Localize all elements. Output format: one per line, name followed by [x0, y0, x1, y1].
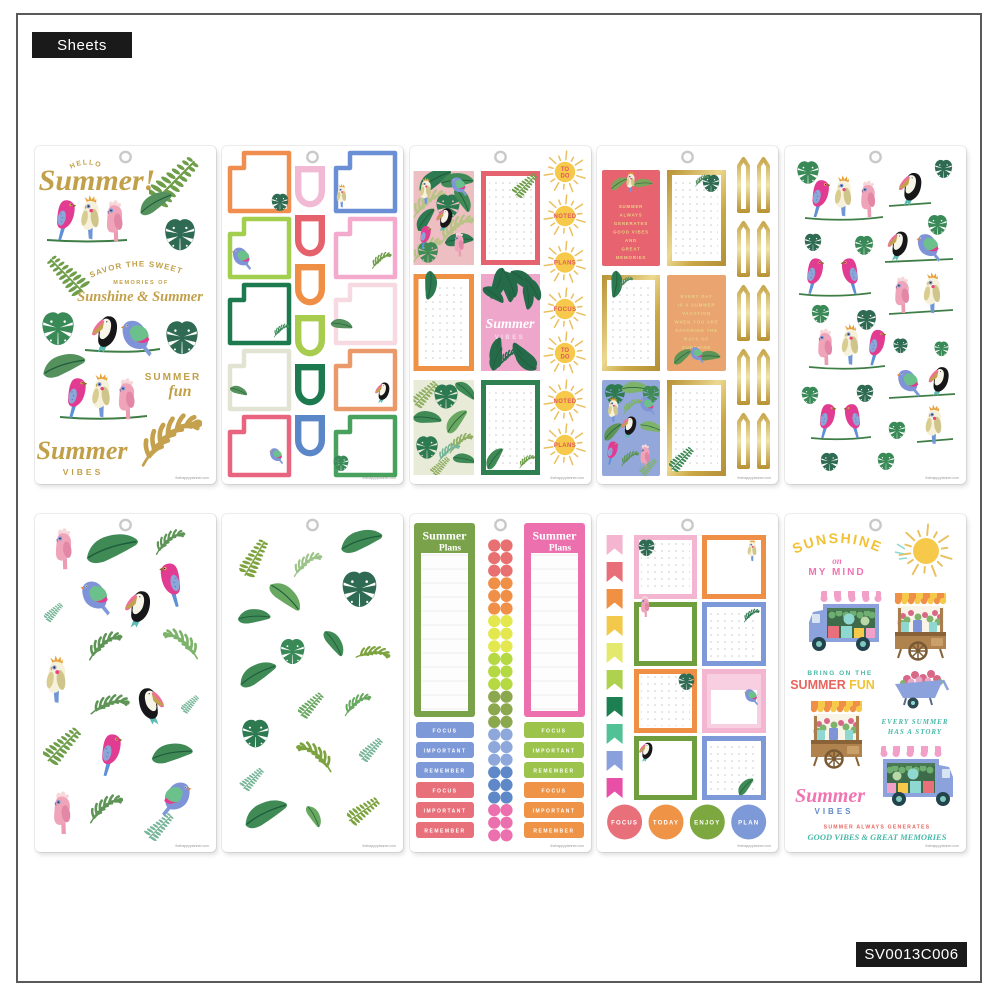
- svg-text:SUMMER: SUMMER: [145, 372, 201, 383]
- svg-text:ENJOY: ENJOY: [694, 821, 720, 827]
- svg-text:FOCUS: FOCUS: [542, 789, 567, 795]
- svg-text:SUMMER ALWAYS GENERATES: SUMMER ALWAYS GENERATES: [824, 825, 931, 831]
- svg-text:SAVOR THE SWEET: SAVOR THE SWEET: [88, 259, 184, 279]
- svg-text:thehappyplanner.com: thehappyplanner.com: [551, 844, 585, 848]
- svg-text:TO: TO: [561, 167, 570, 173]
- svg-text:FOCUS: FOCUS: [554, 307, 577, 313]
- svg-text:Plans: Plans: [439, 544, 461, 554]
- svg-text:DO: DO: [561, 355, 570, 361]
- svg-text:IMPORTANT: IMPORTANT: [424, 809, 467, 815]
- svg-text:SUMMER: SUMMER: [790, 678, 846, 692]
- svg-text:PLANS: PLANS: [554, 443, 576, 449]
- svg-text:GENERATES: GENERATES: [614, 221, 648, 226]
- svg-text:BRING ON THE: BRING ON THE: [807, 670, 872, 677]
- svg-text:VIBES: VIBES: [63, 467, 104, 477]
- svg-text:SUNSHINE: SUNSHINE: [790, 530, 885, 557]
- svg-text:Summer: Summer: [36, 436, 128, 465]
- svg-text:EVERY SUMMER: EVERY SUMMER: [880, 718, 948, 726]
- svg-text:thehappyplanner.com: thehappyplanner.com: [363, 476, 397, 480]
- svg-text:Summer: Summer: [423, 529, 468, 543]
- svg-text:TODAY: TODAY: [653, 821, 679, 827]
- svg-text:FOCUS: FOCUS: [433, 789, 458, 795]
- svg-text:IMPORTANT: IMPORTANT: [424, 749, 467, 755]
- svg-text:IS A SUMMER: IS A SUMMER: [678, 303, 716, 308]
- svg-text:PLANS: PLANS: [554, 261, 576, 267]
- svg-text:HAS A STORY: HAS A STORY: [887, 728, 942, 736]
- svg-text:AND: AND: [625, 238, 637, 243]
- svg-text:VACATION: VACATION: [682, 311, 711, 316]
- svg-text:TO: TO: [561, 348, 570, 354]
- svg-text:RAYS OF: RAYS OF: [684, 337, 709, 342]
- svg-text:WHEN YOU ARE: WHEN YOU ARE: [675, 320, 719, 325]
- svg-text:thehappyplanner.com: thehappyplanner.com: [738, 844, 772, 848]
- svg-text:on: on: [832, 556, 842, 566]
- svg-text:DO: DO: [561, 174, 570, 180]
- svg-text:thehappyplanner.com: thehappyplanner.com: [551, 476, 585, 480]
- svg-text:thehappyplanner.com: thehappyplanner.com: [176, 476, 210, 480]
- svg-text:MEMORIES OF: MEMORIES OF: [113, 280, 169, 286]
- svg-text:PLAN: PLAN: [738, 821, 759, 827]
- svg-text:Plans: Plans: [549, 544, 571, 554]
- svg-text:REMEMBER: REMEMBER: [533, 829, 574, 835]
- svg-text:NOTED: NOTED: [554, 214, 577, 220]
- svg-text:IMPORTANT: IMPORTANT: [533, 809, 576, 815]
- svg-text:FOCUS: FOCUS: [611, 821, 638, 827]
- svg-text:VIBES: VIBES: [495, 335, 526, 341]
- svg-text:REMEMBER: REMEMBER: [424, 769, 465, 775]
- svg-text:IMPORTANT: IMPORTANT: [533, 749, 576, 755]
- svg-text:Summer: Summer: [485, 317, 535, 332]
- svg-text:thehappyplanner.com: thehappyplanner.com: [738, 476, 772, 480]
- svg-text:MEMORIES: MEMORIES: [616, 255, 646, 260]
- svg-text:SAVORING THE: SAVORING THE: [675, 328, 718, 333]
- svg-text:REMEMBER: REMEMBER: [533, 769, 574, 775]
- svg-text:REMEMBER: REMEMBER: [424, 829, 465, 835]
- svg-text:FOCUS: FOCUS: [433, 729, 458, 735]
- svg-text:thehappyplanner.com: thehappyplanner.com: [176, 844, 210, 848]
- svg-text:EVERY DAY: EVERY DAY: [681, 294, 713, 299]
- svg-text:SUMMER: SUMMER: [619, 204, 643, 209]
- svg-text:Summer: Summer: [795, 785, 865, 807]
- svg-text:Sunshine & Summer: Sunshine & Summer: [77, 289, 203, 305]
- svg-text:thehappyplanner.com: thehappyplanner.com: [926, 476, 960, 480]
- svg-text:Summer!: Summer!: [39, 164, 156, 197]
- svg-text:Summer: Summer: [533, 529, 578, 543]
- svg-text:MY MIND: MY MIND: [808, 567, 865, 578]
- svg-text:thehappyplanner.com: thehappyplanner.com: [363, 844, 397, 848]
- svg-text:GOOD VIBES & GREAT MEMORIES: GOOD VIBES & GREAT MEMORIES: [808, 832, 947, 842]
- svg-text:fun: fun: [168, 383, 191, 400]
- svg-text:FOCUS: FOCUS: [542, 729, 567, 735]
- svg-text:ALWAYS: ALWAYS: [620, 213, 643, 218]
- svg-text:GREAT: GREAT: [621, 247, 640, 252]
- svg-text:VIBES: VIBES: [814, 807, 853, 816]
- svg-text:GOOD VIBES: GOOD VIBES: [613, 230, 649, 235]
- svg-text:thehappyplanner.com: thehappyplanner.com: [926, 844, 960, 848]
- svg-text:FUN: FUN: [849, 678, 875, 692]
- svg-text:NOTED: NOTED: [554, 399, 577, 405]
